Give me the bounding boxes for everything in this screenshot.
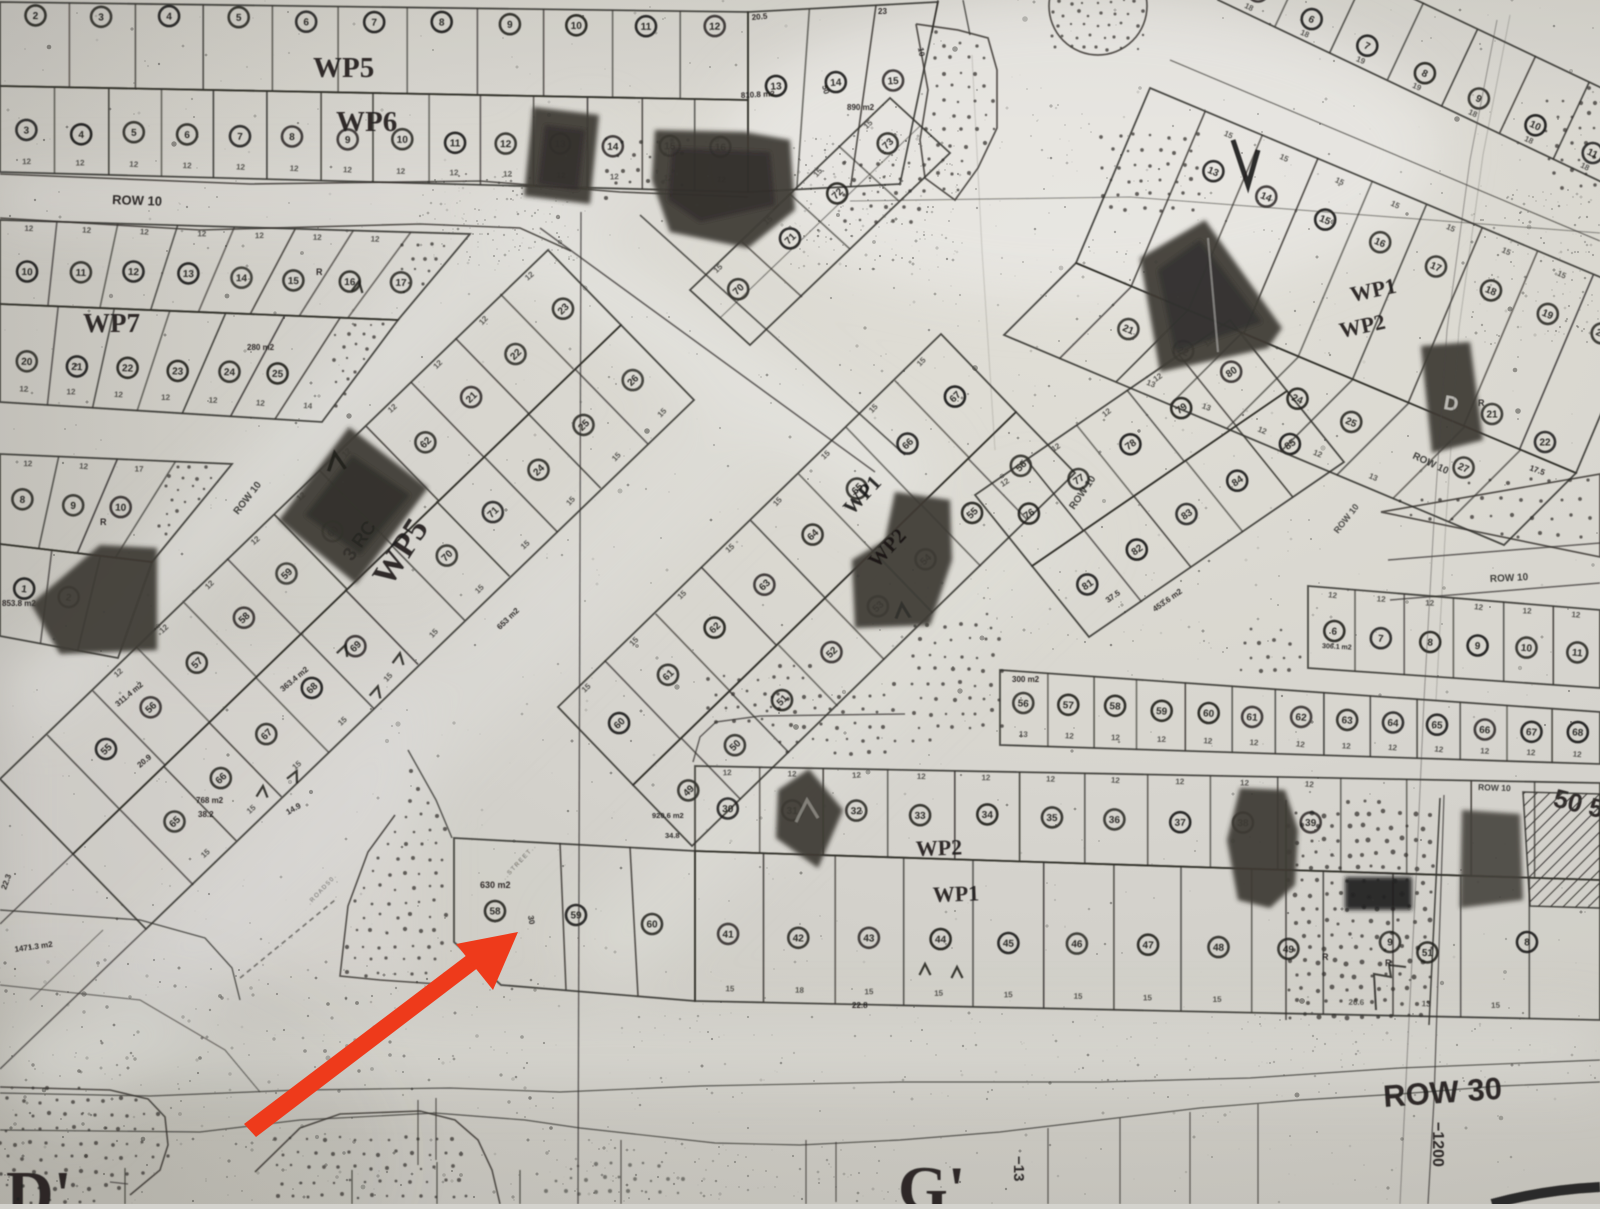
- svg-text:12: 12: [1328, 590, 1338, 600]
- svg-text:33: 33: [914, 811, 926, 822]
- svg-text:12: 12: [1304, 780, 1314, 790]
- svg-text:57: 57: [1062, 700, 1074, 712]
- svg-text:12: 12: [1522, 606, 1532, 615]
- svg-text:20: 20: [21, 357, 33, 368]
- svg-text:8: 8: [439, 17, 445, 28]
- svg-text:60: 60: [646, 920, 658, 931]
- svg-text:58: 58: [1109, 701, 1121, 713]
- svg-text:12: 12: [255, 231, 265, 240]
- svg-text:5: 5: [236, 13, 242, 24]
- svg-text:10: 10: [21, 267, 33, 278]
- svg-text:6: 6: [184, 130, 190, 141]
- svg-text:43: 43: [863, 933, 875, 944]
- svg-text:15: 15: [1004, 990, 1014, 999]
- svg-text:12: 12: [1240, 778, 1250, 787]
- svg-text:−13: −13: [1010, 1156, 1027, 1181]
- svg-text:12: 12: [1203, 736, 1213, 746]
- svg-text:4: 4: [78, 130, 84, 141]
- svg-text:34: 34: [982, 810, 994, 821]
- svg-text:−1200: −1200: [1429, 1122, 1446, 1167]
- svg-text:12: 12: [917, 772, 927, 781]
- svg-text:21: 21: [71, 362, 83, 373]
- svg-text:51: 51: [1422, 948, 1434, 959]
- svg-text:12: 12: [1434, 744, 1445, 754]
- svg-text:8: 8: [1524, 938, 1530, 949]
- svg-text:10: 10: [397, 135, 409, 146]
- svg-text:7: 7: [237, 132, 243, 143]
- svg-text:2: 2: [33, 11, 39, 22]
- svg-text:12: 12: [1480, 746, 1490, 755]
- svg-text:12: 12: [1157, 735, 1166, 744]
- svg-text:59: 59: [570, 911, 582, 922]
- svg-text:12: 12: [396, 167, 406, 176]
- svg-text:12: 12: [1376, 594, 1386, 604]
- svg-text:12: 12: [1388, 743, 1398, 753]
- svg-text:15: 15: [1143, 993, 1153, 1002]
- svg-text:12: 12: [161, 393, 170, 402]
- svg-text:15: 15: [288, 276, 300, 287]
- svg-text:22.8: 22.8: [852, 1001, 868, 1010]
- svg-text:WP2: WP2: [915, 834, 962, 861]
- svg-text:60: 60: [1203, 708, 1215, 720]
- svg-text:4: 4: [166, 12, 172, 23]
- svg-text:12: 12: [343, 165, 353, 175]
- svg-text:300 m2: 300 m2: [1012, 675, 1040, 684]
- svg-text:15: 15: [1213, 995, 1223, 1004]
- svg-text:23: 23: [172, 366, 184, 377]
- svg-text:35: 35: [1046, 813, 1058, 824]
- svg-text:20.5: 20.5: [751, 12, 768, 22]
- svg-text:17: 17: [395, 278, 407, 289]
- svg-text:12: 12: [128, 267, 140, 278]
- svg-text:12: 12: [313, 233, 323, 242]
- svg-text:15: 15: [887, 76, 899, 88]
- svg-text:42: 42: [793, 933, 805, 944]
- svg-text:66: 66: [1479, 725, 1491, 737]
- svg-text:39: 39: [1305, 818, 1317, 829]
- svg-text:65: 65: [1431, 720, 1443, 732]
- svg-text:15: 15: [934, 989, 944, 998]
- svg-text:810.8 m2: 810.8 m2: [741, 89, 776, 100]
- svg-text:5: 5: [131, 128, 137, 139]
- svg-text:ROW 10: ROW 10: [1490, 572, 1529, 585]
- svg-text:WP5: WP5: [313, 52, 374, 84]
- svg-text:12: 12: [1342, 741, 1352, 750]
- svg-text:7: 7: [371, 18, 377, 29]
- svg-text:12: 12: [1571, 610, 1581, 620]
- svg-text:11: 11: [641, 22, 652, 33]
- svg-text:12: 12: [1175, 777, 1185, 786]
- svg-text:ROW 10: ROW 10: [1478, 782, 1511, 793]
- svg-text:15: 15: [1073, 992, 1083, 1001]
- svg-text:58: 58: [489, 907, 501, 918]
- svg-text:10: 10: [115, 502, 127, 513]
- svg-text:41: 41: [722, 929, 734, 940]
- svg-text:25: 25: [272, 369, 284, 380]
- svg-text:67: 67: [1525, 727, 1537, 739]
- svg-text:37: 37: [1175, 818, 1187, 829]
- svg-text:68: 68: [1572, 727, 1584, 739]
- svg-text:21: 21: [1486, 410, 1498, 421]
- svg-text:64: 64: [1387, 718, 1399, 730]
- svg-text:47: 47: [1142, 940, 1154, 951]
- svg-text:920.6 m2: 920.6 m2: [652, 811, 684, 820]
- svg-text:13: 13: [1019, 729, 1029, 739]
- svg-text:30: 30: [722, 804, 734, 815]
- svg-text:12: 12: [140, 227, 150, 237]
- svg-text:14: 14: [830, 77, 842, 89]
- svg-text:12: 12: [114, 390, 124, 400]
- svg-text:WP7: WP7: [83, 308, 140, 338]
- svg-text:12: 12: [182, 161, 192, 170]
- svg-text:12: 12: [503, 170, 513, 179]
- svg-text:12: 12: [449, 168, 459, 177]
- svg-text:12: 12: [610, 172, 620, 181]
- svg-text:890 m2: 890 m2: [847, 103, 875, 112]
- svg-text:14: 14: [607, 142, 619, 153]
- svg-text:8: 8: [19, 495, 25, 506]
- svg-text:D': D': [6, 1158, 72, 1204]
- svg-text:12: 12: [19, 384, 29, 393]
- svg-text:12: 12: [236, 162, 246, 172]
- svg-text:11: 11: [1571, 648, 1583, 660]
- svg-text:38.2: 38.2: [198, 810, 214, 819]
- svg-text:R: R: [100, 517, 107, 527]
- svg-text:12: 12: [82, 226, 92, 236]
- svg-text:12: 12: [1065, 731, 1075, 741]
- svg-text:3: 3: [23, 125, 29, 136]
- svg-text:WP1: WP1: [932, 880, 979, 907]
- svg-text:62: 62: [1295, 712, 1307, 724]
- svg-text:34.8: 34.8: [665, 831, 680, 840]
- svg-text:26.6: 26.6: [1348, 998, 1364, 1007]
- svg-text:12: 12: [289, 164, 299, 174]
- svg-text:48: 48: [1213, 943, 1225, 954]
- svg-text:23: 23: [878, 7, 887, 16]
- svg-text:36: 36: [1109, 815, 1121, 826]
- svg-text:12: 12: [500, 139, 512, 150]
- svg-text:12: 12: [1249, 738, 1259, 748]
- svg-text:14: 14: [303, 401, 313, 411]
- svg-text:12: 12: [981, 773, 990, 782]
- svg-text:12: 12: [852, 771, 862, 780]
- svg-text:18: 18: [795, 986, 805, 995]
- svg-text:59: 59: [1156, 706, 1168, 718]
- svg-text:10: 10: [571, 21, 583, 32]
- svg-text:853.8 m2: 853.8 m2: [2, 599, 36, 608]
- svg-text:R: R: [1322, 952, 1329, 962]
- svg-text:12: 12: [1295, 739, 1306, 749]
- svg-text:8: 8: [289, 132, 295, 143]
- svg-text:10: 10: [1520, 643, 1532, 655]
- svg-text:12: 12: [1474, 602, 1485, 612]
- svg-text:15: 15: [1491, 1001, 1501, 1010]
- svg-text:12: 12: [370, 234, 380, 243]
- svg-text:17: 17: [135, 465, 145, 474]
- svg-text:9: 9: [507, 20, 513, 31]
- svg-text:15: 15: [864, 987, 874, 996]
- svg-text:9: 9: [1387, 938, 1393, 949]
- svg-text:768 m2: 768 m2: [196, 796, 224, 805]
- svg-text:45: 45: [1003, 938, 1015, 949]
- svg-text:12: 12: [1046, 774, 1056, 783]
- svg-text:ROW 10: ROW 10: [112, 192, 162, 209]
- svg-text:9: 9: [70, 501, 76, 512]
- svg-text:12: 12: [1572, 750, 1582, 760]
- svg-text:12: 12: [24, 224, 34, 233]
- svg-text:15: 15: [725, 984, 735, 993]
- svg-text:12: 12: [23, 459, 33, 468]
- svg-text:12: 12: [709, 22, 721, 33]
- svg-text:11: 11: [450, 138, 461, 149]
- svg-text:12: 12: [1526, 748, 1536, 758]
- svg-text:G': G': [898, 1153, 966, 1204]
- svg-text:630 m2: 630 m2: [480, 880, 511, 890]
- svg-text:22: 22: [1539, 438, 1551, 449]
- svg-text:R: R: [316, 267, 323, 277]
- svg-text:12: 12: [723, 768, 733, 777]
- svg-text:24: 24: [224, 367, 236, 378]
- svg-text:14: 14: [236, 273, 248, 284]
- svg-text:11: 11: [75, 268, 86, 279]
- svg-text:12: 12: [75, 158, 85, 167]
- svg-text:61: 61: [1246, 712, 1258, 724]
- svg-text:63: 63: [1341, 715, 1353, 727]
- svg-text:56: 56: [1017, 698, 1029, 710]
- svg-text:12: 12: [129, 160, 139, 170]
- svg-text:12: 12: [256, 398, 266, 408]
- svg-text:46: 46: [1071, 939, 1083, 950]
- svg-text:6: 6: [303, 17, 309, 28]
- svg-text:R: R: [1478, 398, 1485, 408]
- svg-text:R: R: [1385, 958, 1392, 968]
- svg-text:22: 22: [122, 363, 134, 374]
- svg-text:WP6: WP6: [336, 106, 397, 138]
- svg-text:3: 3: [98, 12, 104, 23]
- svg-text:12: 12: [208, 396, 218, 405]
- svg-text:280 m2: 280 m2: [247, 343, 275, 352]
- svg-text:12: 12: [67, 387, 76, 396]
- svg-text:12: 12: [79, 462, 89, 472]
- svg-text:12: 12: [22, 157, 32, 166]
- svg-text:12: 12: [197, 229, 207, 238]
- svg-text:49: 49: [1283, 944, 1295, 955]
- svg-text:13: 13: [1421, 999, 1431, 1009]
- svg-text:12: 12: [1111, 776, 1121, 786]
- svg-text:12: 12: [788, 769, 798, 778]
